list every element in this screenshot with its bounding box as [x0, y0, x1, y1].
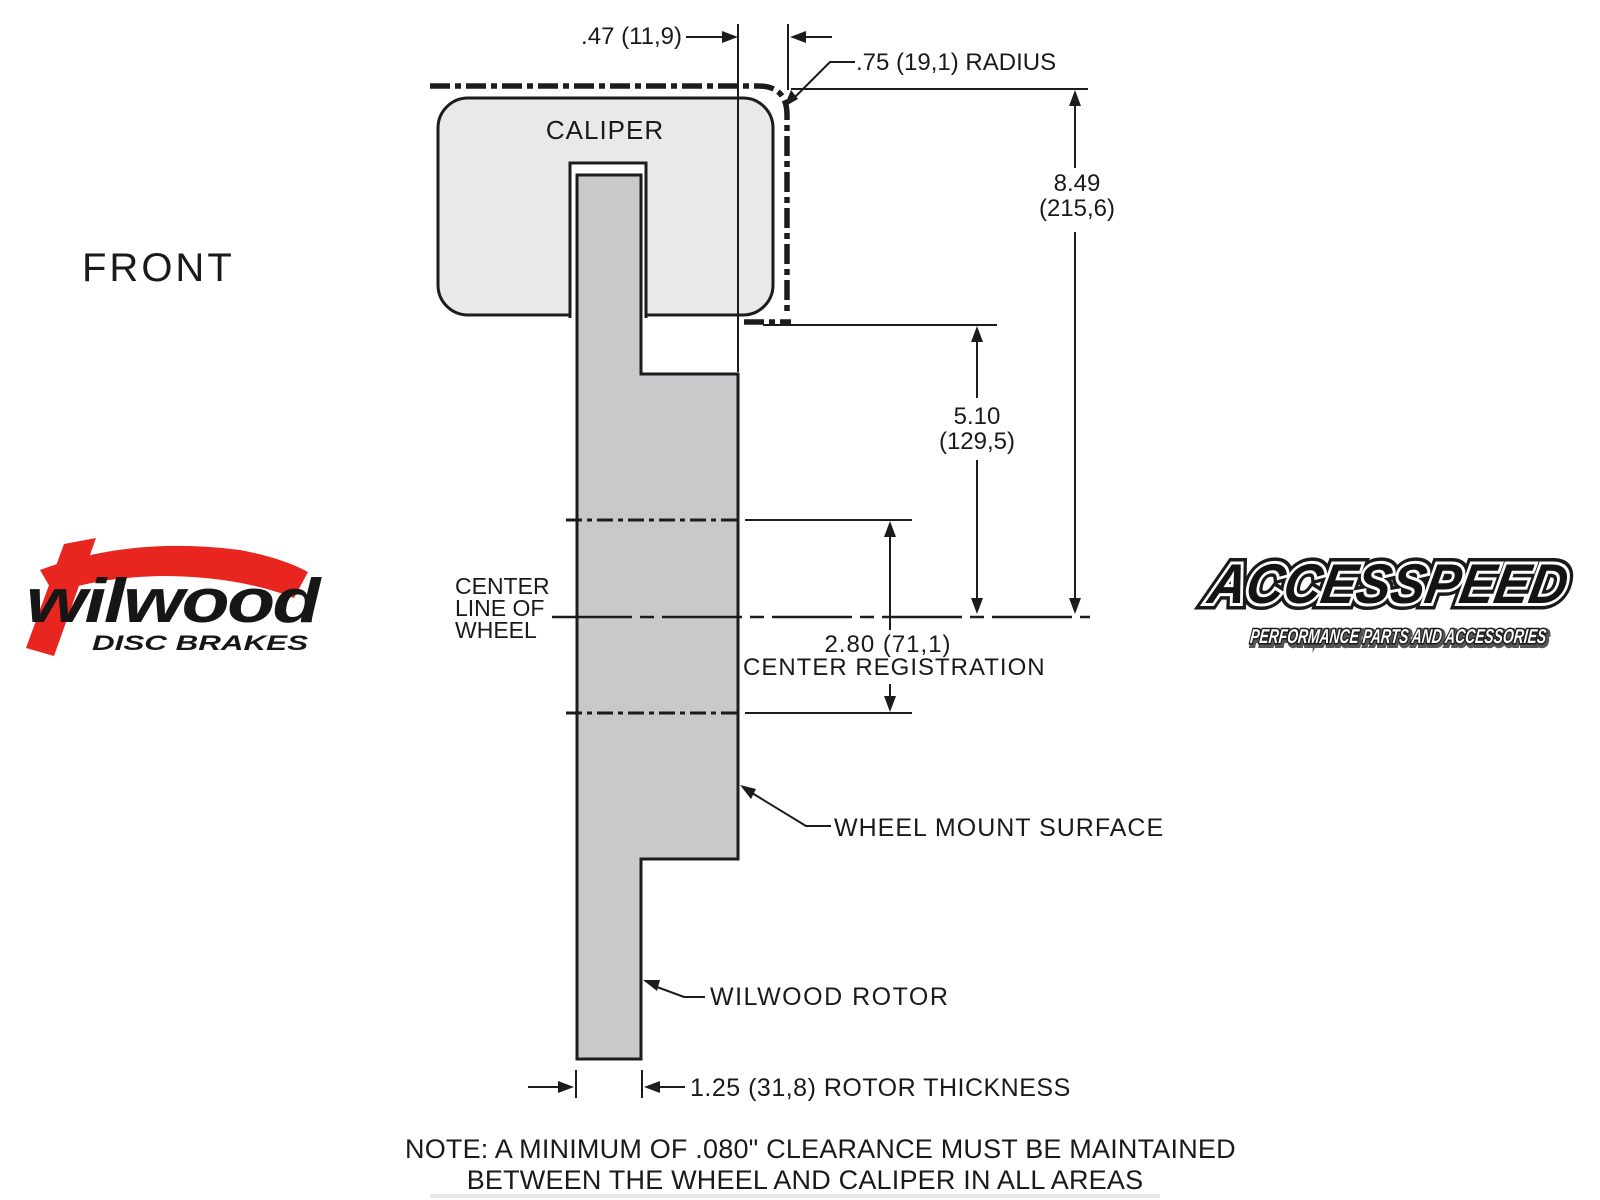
accesspeed-logo: ACCESSPEED ACCESSPEED PERFORMANCE PARTS …	[1190, 525, 1590, 655]
accesspeed-tagline: PERFORMANCE PARTS AND ACCESSORIES	[1249, 626, 1548, 648]
clearance-note-line1: NOTE: A MINIMUM OF .080" CLEARANCE MUST …	[405, 1134, 1205, 1165]
center-registration-text: CENTER REGISTRATION	[743, 656, 1033, 679]
wheel-mount-surface-label: WHEEL MOUNT SURFACE	[834, 814, 1164, 843]
dim-offset-top-label: .47 (11,9)	[500, 23, 682, 51]
accesspeed-wordmark: ACCESSPEED	[1202, 552, 1573, 615]
clearance-note-line2: BETWEEN THE WHEEL AND CALIPER IN ALL ARE…	[405, 1165, 1205, 1196]
accesspeed-wordmark-group: ACCESSPEED ACCESSPEED	[1202, 552, 1573, 615]
center-registration-label: 2.80 (71,1) CENTER REGISTRATION	[743, 633, 1033, 679]
wheel-mount-leader	[740, 785, 831, 826]
dim-caliper-to-center-in: 5.10	[915, 404, 1039, 429]
wilwood-rotor-label: WILWOOD ROTOR	[710, 983, 949, 1012]
dim-caliper-to-center	[971, 326, 983, 614]
clearance-note: NOTE: A MINIMUM OF .080" CLEARANCE MUST …	[405, 1134, 1205, 1196]
dim-overall-height-in: 8.49	[1015, 171, 1139, 196]
dim-overall-height	[1069, 90, 1081, 614]
center-line-label-3: WHEEL	[455, 619, 550, 641]
front-label: FRONT	[82, 246, 235, 291]
center-line-label: CENTER LINE OF WHEEL	[455, 575, 550, 641]
accesspeed-tagline-group: PERFORMANCE PARTS AND ACCESSORIES PERFOR…	[1249, 626, 1550, 650]
diagram-canvas: FRONT CALIPER .47 (11,9) .75 (19,1) RADI…	[0, 0, 1600, 1200]
wilwood-tagline: DISC BRAKES	[92, 632, 308, 655]
dim-caliper-to-center-label: 5.10 (129,5)	[915, 404, 1039, 454]
dim-overall-height-mm: (215,6)	[1015, 196, 1139, 221]
caliper-label: CALIPER	[520, 115, 690, 146]
rotor-thickness-label: 1.25 (31,8) ROTOR THICKNESS	[690, 1074, 1071, 1103]
rotor-leader	[643, 980, 705, 997]
dim-rotor-thickness-arrows	[528, 1081, 685, 1093]
radius-leader	[784, 62, 855, 107]
center-line-label-1: CENTER	[455, 575, 550, 597]
center-line-label-2: LINE OF	[455, 597, 550, 619]
dim-offset-arrows	[686, 31, 832, 43]
wilwood-logo: wilwood DISC BRAKES	[10, 528, 330, 668]
dim-radius-label: .75 (19,1) RADIUS	[856, 49, 1056, 77]
center-registration-value: 2.80 (71,1)	[743, 633, 1033, 656]
wilwood-wordmark: wilwood	[26, 567, 322, 636]
dim-caliper-to-center-mm: (129,5)	[915, 429, 1039, 454]
dim-overall-height-label: 8.49 (215,6)	[1015, 171, 1139, 221]
